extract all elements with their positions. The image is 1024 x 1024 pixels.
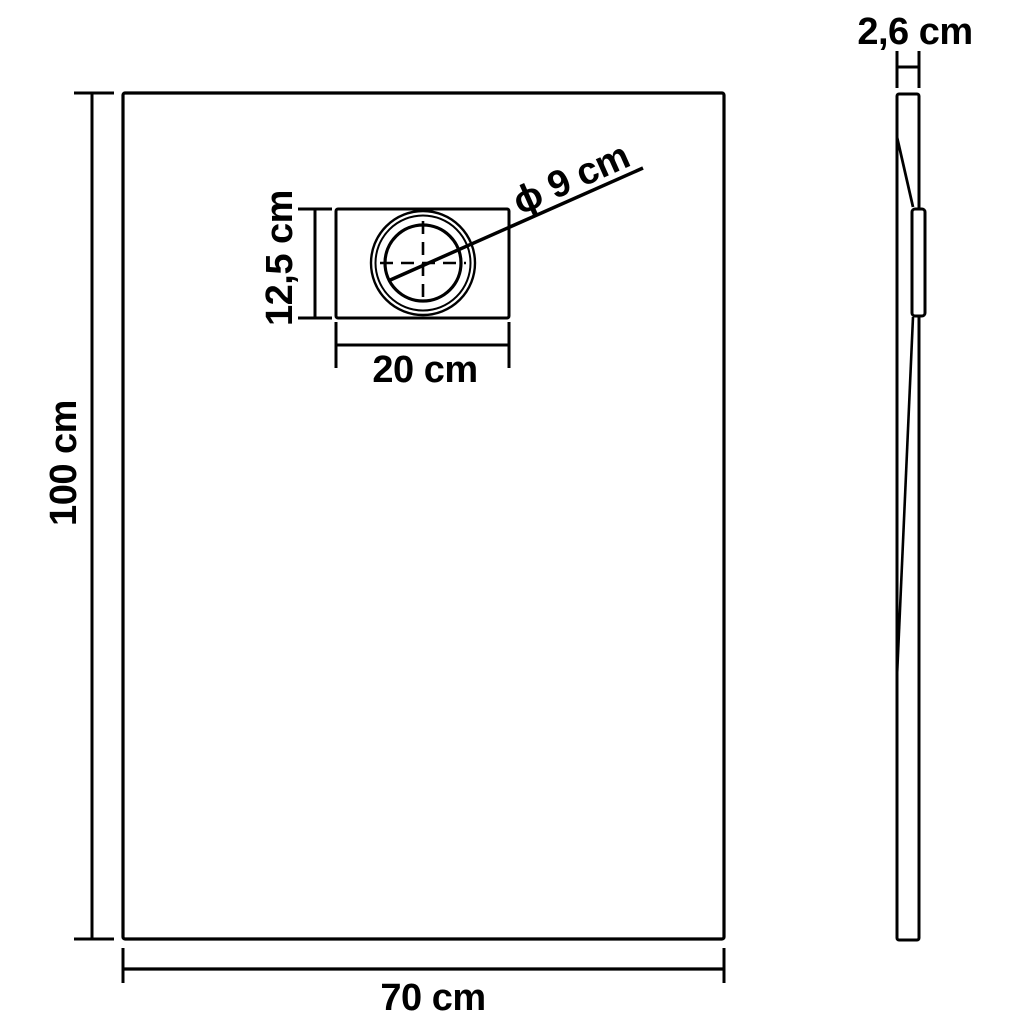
side-surface-slope-upper: [897, 137, 913, 207]
drain-height-dimension-label: 12,5 cm: [259, 190, 301, 326]
height-dimension: 100 cm: [43, 93, 114, 939]
drain-height-dimension: 12,5 cm: [259, 190, 332, 326]
drain-diameter-label: ϕ 9 cm: [507, 135, 636, 223]
front-view: ϕ 9 cm 100 cm 70 cm 20 cm 12: [43, 93, 724, 1019]
drain-width-dimension: 20 cm: [336, 322, 509, 391]
width-dimension: 70 cm: [123, 948, 724, 1019]
tray-front-outline: [123, 93, 724, 939]
side-surface-slope-lower: [897, 317, 913, 677]
thickness-dimension: 2,6 cm: [857, 11, 972, 88]
shower-tray-dimension-diagram: ϕ 9 cm 100 cm 70 cm 20 cm 12: [0, 0, 1024, 1024]
drain-side-protrusion: [912, 209, 925, 316]
width-dimension-label: 70 cm: [380, 977, 485, 1019]
drain-unit: ϕ 9 cm: [336, 135, 643, 318]
thickness-dimension-label: 2,6 cm: [857, 11, 972, 53]
drain-width-dimension-label: 20 cm: [372, 349, 477, 391]
height-dimension-label: 100 cm: [43, 400, 85, 526]
side-view: 2,6 cm: [857, 11, 972, 940]
